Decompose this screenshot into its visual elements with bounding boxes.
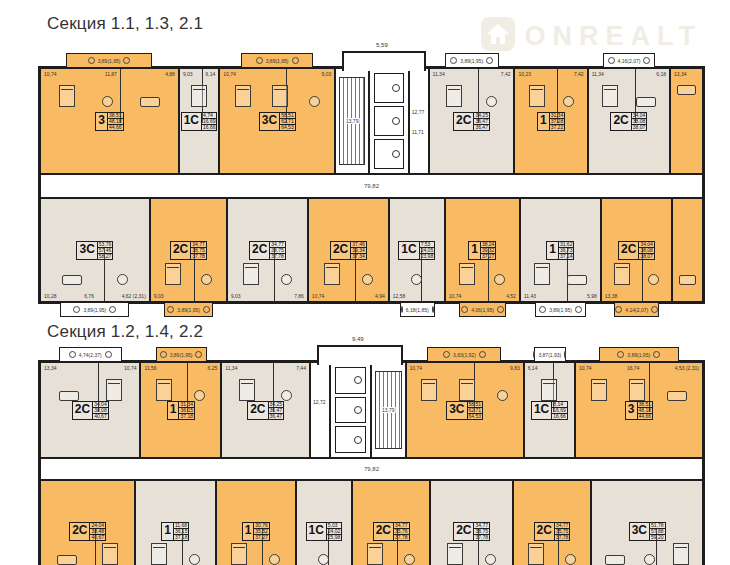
unit-type-label: 2С34,0438,0840,67 (72, 401, 109, 420)
apartment-unit-2С: 11,346,182С34,0438,0838,074,16(2,07) (589, 69, 671, 173)
unit-type-label: 2С34,2536,4736,47 (247, 401, 284, 420)
furniture-group (186, 85, 212, 107)
furniture-group (234, 263, 301, 285)
dimension-label: 6,14 (205, 71, 215, 77)
unit-type: 1 (168, 402, 179, 419)
bed-icon (459, 379, 475, 401)
balcony-area-label: 3,83(1,92) (453, 352, 476, 358)
balcony-chair-icon (109, 306, 116, 313)
unit-type-label: 2С37,4639,3437,34 (330, 241, 367, 260)
unit-type: 2С (70, 523, 89, 540)
apartment-unit-1: 9,89111,6836,1537,18 (136, 481, 216, 565)
area-value: 25,98 (327, 534, 342, 540)
balcony-chair-icon (608, 57, 615, 64)
elevator-shafts (329, 363, 372, 457)
table-icon (648, 274, 659, 285)
unit-type-label: 111,6836,1537,18 (161, 522, 189, 541)
unit-areas: 4,7416,6916,66 (201, 113, 217, 130)
dimension-label: 11,34 (433, 71, 445, 77)
balcony-chair-icon (160, 351, 167, 358)
bed-icon (614, 263, 630, 285)
apartment-unit-2С: 13,382С34,0438,0838,074,14(2,07) (602, 199, 673, 301)
edge-unit (673, 199, 702, 301)
table-icon (309, 96, 320, 107)
apartment-unit-2С: 4,042С34,7735,7637,78 (353, 481, 431, 565)
balcony-chair-icon (486, 57, 493, 64)
bed-icon (459, 263, 475, 285)
bed-icon (272, 85, 288, 107)
bed-icon (529, 85, 545, 107)
balcony-area-label: 3,89(1,95) (627, 352, 650, 358)
dimension-labels: 9,03 (154, 293, 223, 299)
table-icon (117, 274, 128, 285)
unit-areas: 31,3437,2837,22 (549, 113, 565, 130)
dimension-label: 10,74 (579, 365, 592, 371)
upper-unit-row: 13,3410,742С34,0438,0840,674,74(2,37)11,… (41, 363, 702, 457)
unit-areas: 37,4639,3437,34 (350, 242, 366, 259)
area-value: 16,66 (202, 124, 217, 130)
balcony-chair-icon (539, 306, 546, 313)
unit-areas: 34,7738,7537,78 (473, 523, 489, 540)
lower-unit-row: 5,924,862С24,0438,4840,679,89111,6836,15… (41, 481, 702, 565)
stair-dimension: 13,79 (381, 407, 396, 413)
dimension-labels: 10,237,42 (518, 71, 583, 77)
area-value: 36,47 (269, 413, 284, 419)
area-value: 37,78 (394, 534, 409, 540)
dimension-labels: 10,7411,874,88 (44, 71, 175, 77)
bed-icon (447, 543, 463, 565)
edge-unit: 13,34 (671, 69, 702, 173)
furniture-group (396, 274, 438, 285)
unit-type-label: 2С34,2536,4736,47 (453, 112, 490, 131)
unit-type-label: 1С5,0324,0225,98 (306, 522, 343, 541)
balcony-chair-icon (533, 351, 535, 358)
table-icon (281, 274, 292, 285)
area-value: 44,66 (638, 413, 653, 419)
unit-type: 2С (374, 523, 393, 540)
house-icon (480, 16, 516, 56)
balcony: 4,16(2,07) (603, 53, 655, 68)
unit-type-label: 3С51,7857,8859,20 (629, 522, 666, 541)
apartment-unit-2С: 7,864,662С34,7738,7537,78 (431, 481, 513, 565)
bed-icon (151, 543, 167, 565)
balcony-chair-icon (256, 57, 263, 64)
elevator (374, 73, 404, 103)
sofa-icon (62, 275, 82, 285)
area-value: 37,22 (550, 124, 565, 130)
table-icon (644, 554, 655, 565)
dimension-label: 7,44 (296, 365, 306, 371)
dimension-label: 11,56 (144, 365, 156, 371)
furniture-group (437, 543, 505, 565)
balcony-chair-icon (432, 306, 434, 313)
furniture-group (359, 543, 423, 565)
onrealt-logo: ONREALT (480, 16, 703, 56)
balcony-chair-icon (479, 351, 486, 358)
furniture-group (677, 85, 696, 95)
unit-type-label: 2С34,7738,7537,78 (170, 241, 207, 260)
sofa-icon (57, 555, 77, 565)
unit-type: 1 (162, 523, 173, 540)
floorplan-section-1: 10,7411,874,88338,5148,1844,663,89(1,95)… (38, 66, 705, 304)
bed-icon (421, 379, 437, 401)
sofa-icon (636, 97, 656, 107)
dimension-label: 7,42 (501, 71, 511, 77)
unit-type-label: 2С34,7738,7537,78 (249, 241, 286, 260)
unit-type-label: 3С53,7657,4658,27 (76, 241, 113, 260)
corridor-length-label: 79,82 (364, 183, 379, 189)
area-value: 58,27 (98, 253, 113, 259)
furniture-group (527, 263, 594, 285)
balcony-area-label: 4,16(2,07) (618, 58, 641, 64)
unit-areas: 38,5148,1844,66 (637, 402, 653, 419)
area-value: 59,20 (650, 534, 665, 540)
balcony-chair-icon (651, 306, 658, 313)
dimension-labels: 11,566,25 (144, 365, 217, 371)
unit-areas: 34,2536,4736,47 (268, 402, 284, 419)
dimension-label: 13,34 (44, 365, 57, 371)
area-value: 38,07 (632, 124, 647, 130)
furniture-group (315, 263, 382, 285)
unit-type: 1С (307, 523, 326, 540)
unit-type: 2С (454, 113, 473, 130)
balcony: 3,89(1,95) (535, 302, 586, 317)
unit-type: 2С (454, 523, 473, 540)
balcony-chair-icon (615, 306, 622, 313)
dimension-labels: 11,346,18 (592, 71, 666, 77)
elevator (335, 397, 366, 424)
stair-elevator-core: 13,7912,729,49 (311, 363, 407, 457)
dimension-label: 13,38 (605, 293, 618, 299)
apartment-unit-1: 11,435,98131,6236,7337,143,89(1,95) (521, 199, 602, 301)
apartment-unit-2С: 10,744,942С37,4639,3437,34 (309, 199, 390, 301)
dimension-label: 11,34 (225, 365, 237, 371)
dimension-label: 4,53 (2,31) (675, 365, 699, 371)
apartment-unit-2С: 7,884,842С34,7735,7537,78 (514, 481, 592, 565)
elevator (374, 139, 404, 169)
balcony-area-label: 3,89(1,95) (549, 307, 572, 313)
unit-type: 1 (538, 113, 549, 130)
unit-type-label: 131,6236,7337,14 (546, 241, 574, 260)
section-2-title: Секция 1.2, 1.4, 2.2 (47, 322, 203, 342)
table-icon (281, 390, 292, 401)
balcony: 4,14(2,07) (614, 302, 659, 317)
area-value: 37,78 (270, 253, 285, 259)
corridor-length-label: 79,82 (364, 466, 379, 472)
bed-icon (102, 543, 118, 565)
balcony-area-label: 3,89(1,95) (83, 307, 106, 313)
balcony: 3,89(1,95) (156, 347, 207, 362)
bed-icon (235, 85, 251, 107)
floorplan-section-2: 13,3410,742С34,0438,0840,674,74(2,37)11,… (38, 360, 705, 565)
furniture-group (582, 379, 696, 401)
dimension-labels: 10,749,83 (410, 365, 520, 371)
bed-icon (191, 85, 207, 107)
unit-type-label: 131,3436,1537,18 (167, 401, 195, 420)
table-icon (563, 96, 574, 107)
table-icon (189, 554, 200, 565)
sofa-icon (679, 275, 696, 285)
apartment-unit-1С: 6,141С8,1416,6916,663,87(1,93) (525, 363, 576, 457)
unit-areas: 31,6236,7337,14 (558, 242, 574, 259)
table-icon (485, 554, 496, 565)
balcony-chair-icon (195, 351, 202, 358)
apartment-unit-2С: 13,3410,742С34,0438,0840,674,74(2,37) (41, 363, 141, 457)
elevator-shafts (368, 69, 410, 173)
sofa-icon (605, 555, 625, 565)
balcony: 3,89(1,95) (241, 53, 314, 68)
unit-type: 2С (331, 242, 350, 259)
dimension-label: 6,14 (528, 365, 538, 371)
stair-elevator-core: 13,7912,7711,715,59 (336, 69, 429, 173)
unit-areas: 11,6836,1537,18 (173, 523, 189, 540)
area-value: 40,67 (93, 413, 108, 419)
furniture-group (147, 379, 214, 401)
unit-type: 3С (260, 113, 279, 130)
area-value: 37,14 (559, 253, 574, 259)
unit-type: 3С (447, 402, 466, 419)
furniture-group (47, 274, 143, 285)
unit-areas: 24,0438,4840,67 (89, 523, 105, 540)
furniture-group (413, 379, 517, 401)
furniture-group (47, 379, 133, 401)
dimension-label: 9,03 (322, 71, 332, 77)
upper-unit-row: 10,7411,874,88338,5148,1844,663,89(1,95)… (41, 69, 702, 173)
sofa-icon (667, 391, 687, 401)
furniture-group (608, 263, 665, 285)
unit-type: 3С (630, 523, 649, 540)
furniture-group (452, 263, 513, 285)
sofa-icon (59, 391, 79, 401)
central-corridor: 79,82 (41, 173, 702, 199)
unit-type: 2С (611, 113, 630, 130)
dimension-label: 10,74 (410, 365, 423, 371)
unit-areas: 5,0324,0225,98 (326, 523, 342, 540)
balcony: 3,87(1,93) (534, 347, 567, 362)
central-corridor: 79,82 (41, 457, 702, 481)
apartment-unit-3: 10,7416,744,53 (2,31)338,5148,1844,663,8… (576, 363, 702, 457)
furniture-group (436, 85, 508, 107)
core-hall: 12,72 (311, 363, 329, 457)
balcony-chair-icon (105, 351, 112, 358)
balcony-area-label: 3,89(1,95) (266, 58, 289, 64)
sofa-icon (140, 97, 160, 107)
dimension-label: 6,25 (208, 365, 218, 371)
apartment-unit-3С: 10,749,033С58,5162,7164,533,89(1,95) (220, 69, 336, 173)
area-value: 36,47 (474, 124, 489, 130)
furniture-group (47, 85, 172, 107)
unit-areas: 34,0438,0840,67 (92, 402, 108, 419)
dimension-label: 7,86 (294, 293, 304, 299)
dimension-labels: 11,347,44 (225, 365, 306, 371)
unit-type: 2С (171, 242, 190, 259)
table-icon (194, 390, 205, 401)
bed-icon (591, 379, 607, 401)
unit-type-label: 131,3437,2837,22 (537, 112, 565, 131)
dimension-label: 6,18 (656, 71, 666, 77)
dimension-label: 12,77 (412, 109, 425, 115)
balcony-area-label: 6,18(1,85) (406, 307, 429, 313)
unit-areas: 34,0438,0838,07 (631, 113, 647, 130)
unit-type-label: 2С34,7738,7537,78 (453, 522, 490, 541)
balcony-chair-icon (401, 306, 403, 313)
balcony-chair-icon (653, 351, 660, 358)
area-value: 37,27 (254, 534, 269, 540)
apartment-unit-1: 10,237,42131,3437,2837,22 (515, 69, 588, 173)
balcony: 4,06(1,95) (459, 302, 506, 317)
apartment-unit-2С: 9,037,862С34,7738,7537,78 (228, 199, 309, 301)
unit-type-label: 1С4,7416,6916,66 (181, 112, 218, 131)
dimension-label: 10,74 (44, 71, 57, 77)
table-icon (404, 554, 415, 565)
stair-dimension: 13,79 (345, 118, 360, 124)
bed-icon (243, 263, 259, 285)
bed-icon (239, 379, 255, 401)
dimension-label: 9,03 (183, 71, 193, 77)
table-icon (565, 554, 576, 565)
bed-icon (165, 263, 181, 285)
lower-unit-row: 10,286,764,62 (2,31)3С53,7657,4658,273,8… (41, 199, 702, 301)
unit-type: 1С (532, 402, 551, 419)
area-value: 23,98 (420, 253, 435, 259)
area-value: 37,78 (474, 534, 489, 540)
dimension-label: 16,74 (627, 365, 640, 371)
table-icon (102, 96, 113, 107)
apartment-unit-2С: 11,347,442С34,2536,4736,47 (222, 363, 311, 457)
unit-areas: 34,7735,7637,78 (393, 523, 409, 540)
plan-outline: 13,3410,742С34,0438,0840,674,74(2,37)11,… (38, 360, 705, 565)
elevator (335, 426, 366, 453)
apartment-unit-3С: 10,286,764,62 (2,31)3С53,7657,4658,273,8… (41, 199, 151, 301)
dimension-labels: 10,286,764,62 (2,31) (44, 293, 146, 299)
dimension-labels: 10,7416,744,53 (2,31) (579, 365, 699, 371)
bed-icon (106, 379, 122, 401)
apartment-unit-3С: 10,749,833С58,5162,7164,533,83(1,92) (407, 363, 525, 457)
dimension-labels: 13,38 (605, 293, 668, 299)
balcony-chair-icon (575, 306, 582, 313)
furniture-group (228, 379, 303, 401)
balcony-chair-icon (167, 306, 174, 313)
unit-type: 2С (248, 402, 267, 419)
table-icon (497, 390, 508, 401)
unit-type-label: 2С34,7735,7537,78 (534, 522, 571, 541)
dimension-labels: 10,744,52 (449, 293, 516, 299)
dimension-labels: 10,744,94 (312, 293, 385, 299)
area-value: 44,66 (108, 124, 123, 130)
apartment-unit-2С: 9,032С34,7738,7537,783,89(1,95) (151, 199, 228, 301)
balcony-area-label: 4,06(1,95) (471, 307, 494, 313)
balcony: 3,89(1,95) (66, 53, 153, 68)
balcony-area-label: 3,89(1,95) (460, 58, 483, 64)
sofa-icon (677, 85, 696, 95)
unit-type: 1 (547, 242, 558, 259)
table-icon (411, 274, 422, 285)
unit-areas: 34,7738,7537,78 (269, 242, 285, 259)
dimension-label: 9,03 (154, 293, 164, 299)
area-value: 38,07 (639, 253, 654, 259)
apartment-unit-2С: 5,924,862С24,0438,4840,67 (41, 481, 136, 565)
dimension-label: 4,88 (165, 71, 175, 77)
area-value: 16,66 (552, 413, 567, 419)
dimension-label: 10,23 (518, 71, 531, 77)
unit-type: 3 (96, 113, 107, 130)
apartment-unit-3: 10,7411,874,88338,5148,1844,663,89(1,95) (41, 69, 180, 173)
furniture-group (303, 554, 345, 565)
balcony-area-label: 3,87(1,93) (538, 352, 561, 358)
balcony-chair-icon (461, 306, 468, 313)
dimension-labels: 9,037,86 (231, 293, 304, 299)
dimension-label: 11,43 (524, 293, 536, 299)
balcony-chair-icon (450, 57, 457, 64)
dimension-label: 10,74 (223, 71, 236, 77)
unit-type-label: 338,5148,1844,66 (95, 112, 123, 131)
unit-type: 1С (182, 113, 201, 130)
area-value: 37,18 (179, 413, 194, 419)
bed-icon (367, 543, 383, 565)
dimension-label: 4,94 (375, 293, 385, 299)
bed-icon (541, 379, 557, 401)
elevator (335, 367, 366, 394)
dimension-label: 10,28 (44, 293, 57, 299)
balcony-area-label: 3,89(1,95) (177, 307, 200, 313)
unit-type-label: 2С24,0438,4840,67 (69, 522, 106, 541)
unit-type-label: 138,2439,3237,27 (468, 241, 496, 260)
unit-type-label: 3С58,5162,7164,53 (446, 401, 483, 420)
balcony-chair-icon (69, 351, 76, 358)
unit-type: 2С (619, 242, 638, 259)
balcony: 3,83(1,92) (427, 347, 501, 362)
bed-icon (156, 379, 172, 401)
furniture-group (521, 85, 580, 107)
area-value: 37,27 (481, 253, 496, 259)
balcony-chair-icon (88, 57, 95, 64)
unit-type: 3 (626, 402, 637, 419)
unit-type-label: 2С34,7735,7637,78 (373, 522, 410, 541)
bed-icon (528, 543, 544, 565)
balcony-area-label: 4,74(2,37) (79, 352, 102, 358)
dimension-label: 9,49 (352, 336, 364, 342)
dimension-labels: 13,34 (674, 71, 699, 77)
balcony-chair-icon (564, 351, 566, 358)
stair-shaft-top (317, 345, 403, 365)
dimension-label: 9,03 (231, 293, 241, 299)
balcony: 3,89(1,95) (445, 53, 499, 68)
balcony-chair-icon (123, 57, 130, 64)
balcony-chair-icon (203, 306, 210, 313)
dimension-label: 7,42 (574, 71, 584, 77)
unit-type: 1 (243, 523, 254, 540)
apartment-unit-3С: 10,286,764,883С51,7857,8859,20 (592, 481, 702, 565)
dimension-label: 5,98 (587, 293, 597, 299)
unit-areas: 8,1416,6916,66 (551, 402, 567, 419)
furniture-group (226, 85, 328, 107)
dimension-labels: 9,036,14 (183, 71, 215, 77)
bed-icon (59, 85, 75, 107)
unit-type-label: 2С34,0438,0838,07 (618, 241, 655, 260)
unit-type-label: 3С58,5162,7164,53 (259, 112, 296, 131)
unit-areas: 58,5162,7164,53 (279, 113, 295, 130)
apartment-unit-1: 6,92130,7635,5237,27 (217, 481, 297, 565)
area-value: 64,53 (280, 124, 295, 130)
area-value: 40,67 (90, 534, 105, 540)
table-icon (362, 274, 373, 285)
dimension-labels: 10,749,03 (223, 71, 331, 77)
furniture-group (47, 543, 128, 565)
unit-areas: 38,2439,3237,27 (480, 242, 496, 259)
balcony-chair-icon (292, 57, 299, 64)
unit-type: 1 (469, 242, 480, 259)
unit-areas: 34,2536,4736,47 (473, 113, 489, 130)
